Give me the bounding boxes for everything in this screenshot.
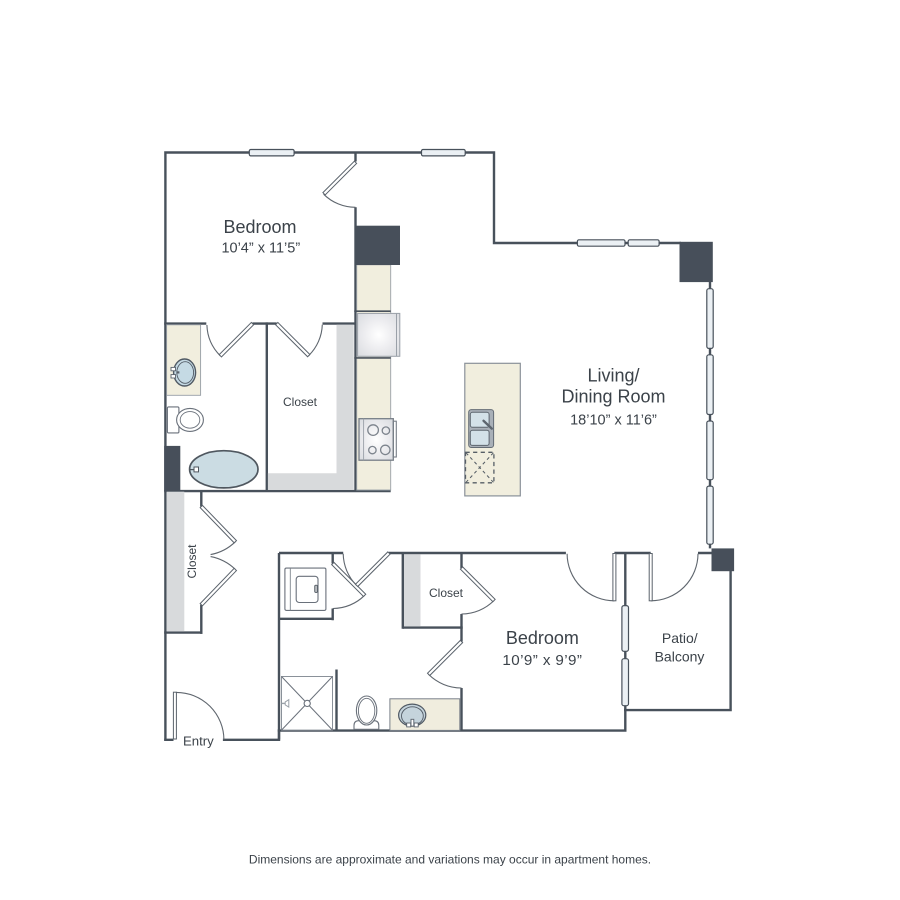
svg-text:10’9” x 9’9”: 10’9” x 9’9” xyxy=(502,652,582,669)
svg-text:Closet: Closet xyxy=(429,586,464,600)
svg-text:Balcony: Balcony xyxy=(655,649,705,665)
svg-text:Living/: Living/ xyxy=(587,366,639,386)
svg-text:Patio/: Patio/ xyxy=(662,630,698,646)
svg-text:Bedroom: Bedroom xyxy=(506,628,579,648)
svg-text:Entry: Entry xyxy=(183,734,214,749)
svg-text:Dining Room: Dining Room xyxy=(561,387,665,407)
svg-text:Closet: Closet xyxy=(283,395,318,409)
svg-text:Dimensions are approximate and: Dimensions are approximate and variation… xyxy=(249,853,651,867)
svg-text:10’4” x 11’5”: 10’4” x 11’5” xyxy=(221,240,300,256)
svg-text:Bedroom: Bedroom xyxy=(223,217,296,237)
svg-text:Closet: Closet xyxy=(185,544,199,579)
svg-text:18’10” x 11’6”: 18’10” x 11’6” xyxy=(570,413,657,429)
